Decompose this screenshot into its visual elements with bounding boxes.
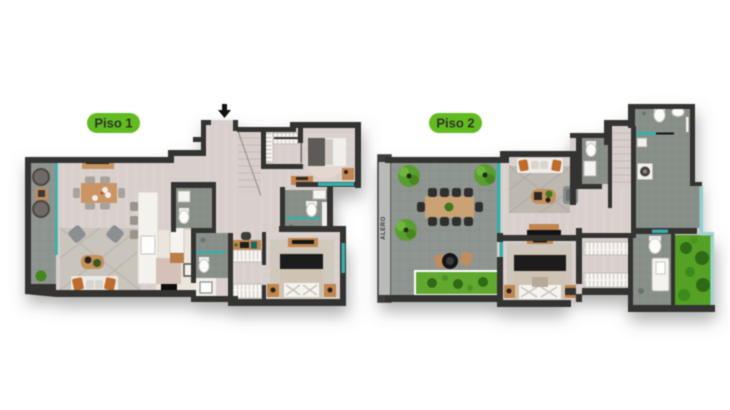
svg-text:Piso 1: Piso 1 <box>94 116 132 131</box>
svg-text:Piso 2: Piso 2 <box>436 116 474 131</box>
svg-text:ALERO: ALERO <box>381 216 387 240</box>
